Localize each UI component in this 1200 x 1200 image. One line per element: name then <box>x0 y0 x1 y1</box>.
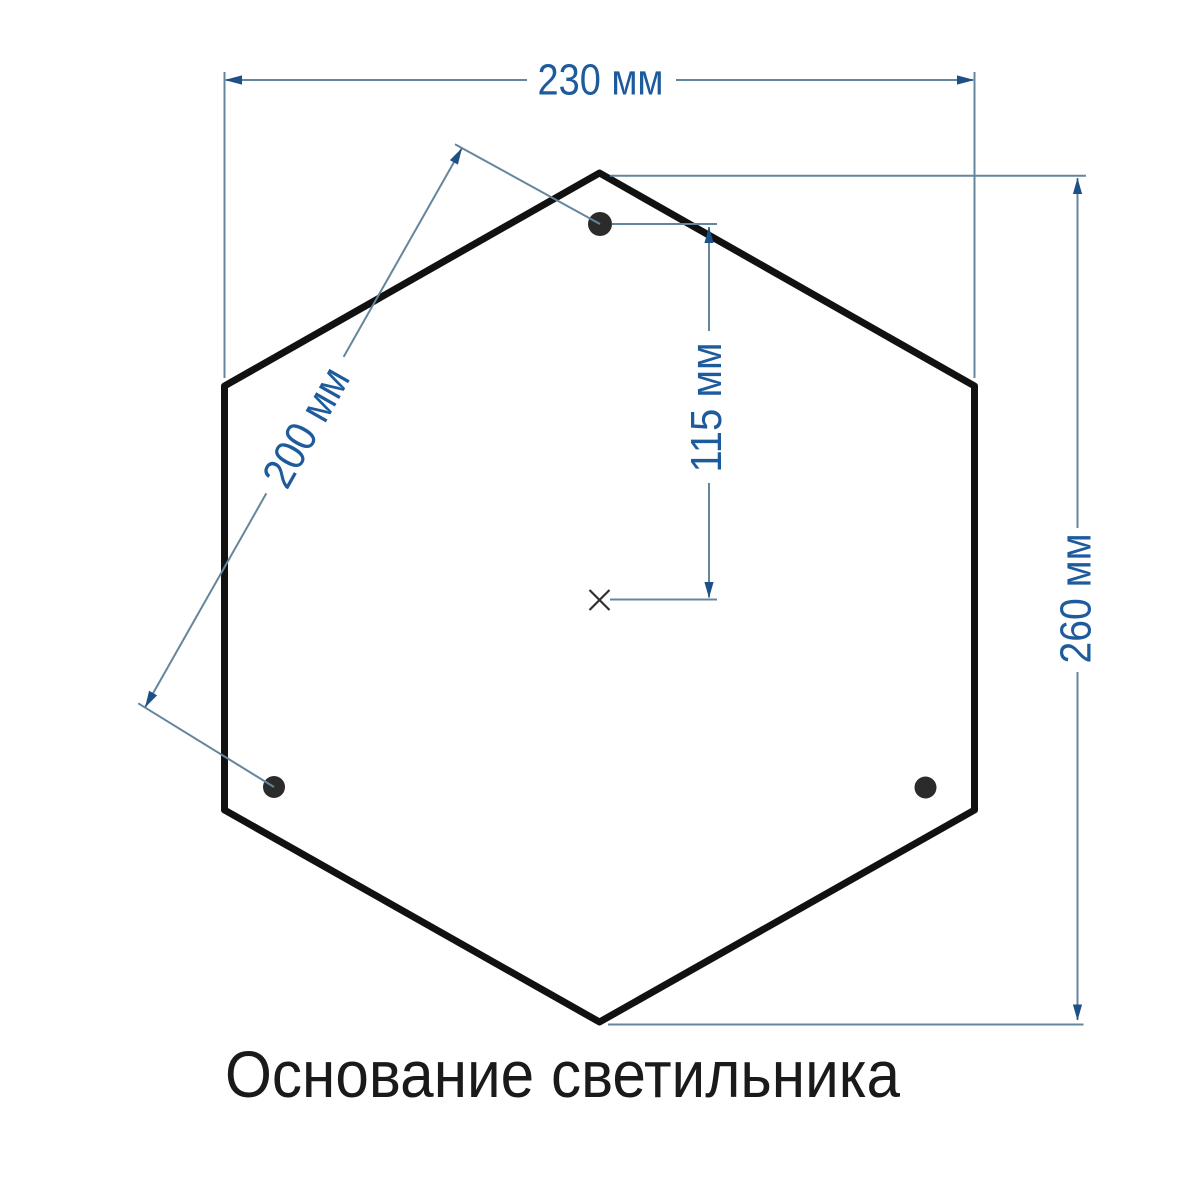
svg-text:Основание светильника: Основание светильника <box>225 1037 900 1111</box>
svg-text:260 мм: 260 мм <box>1052 534 1101 664</box>
svg-text:115 мм: 115 мм <box>682 343 731 473</box>
svg-text:230 мм: 230 мм <box>538 56 664 105</box>
